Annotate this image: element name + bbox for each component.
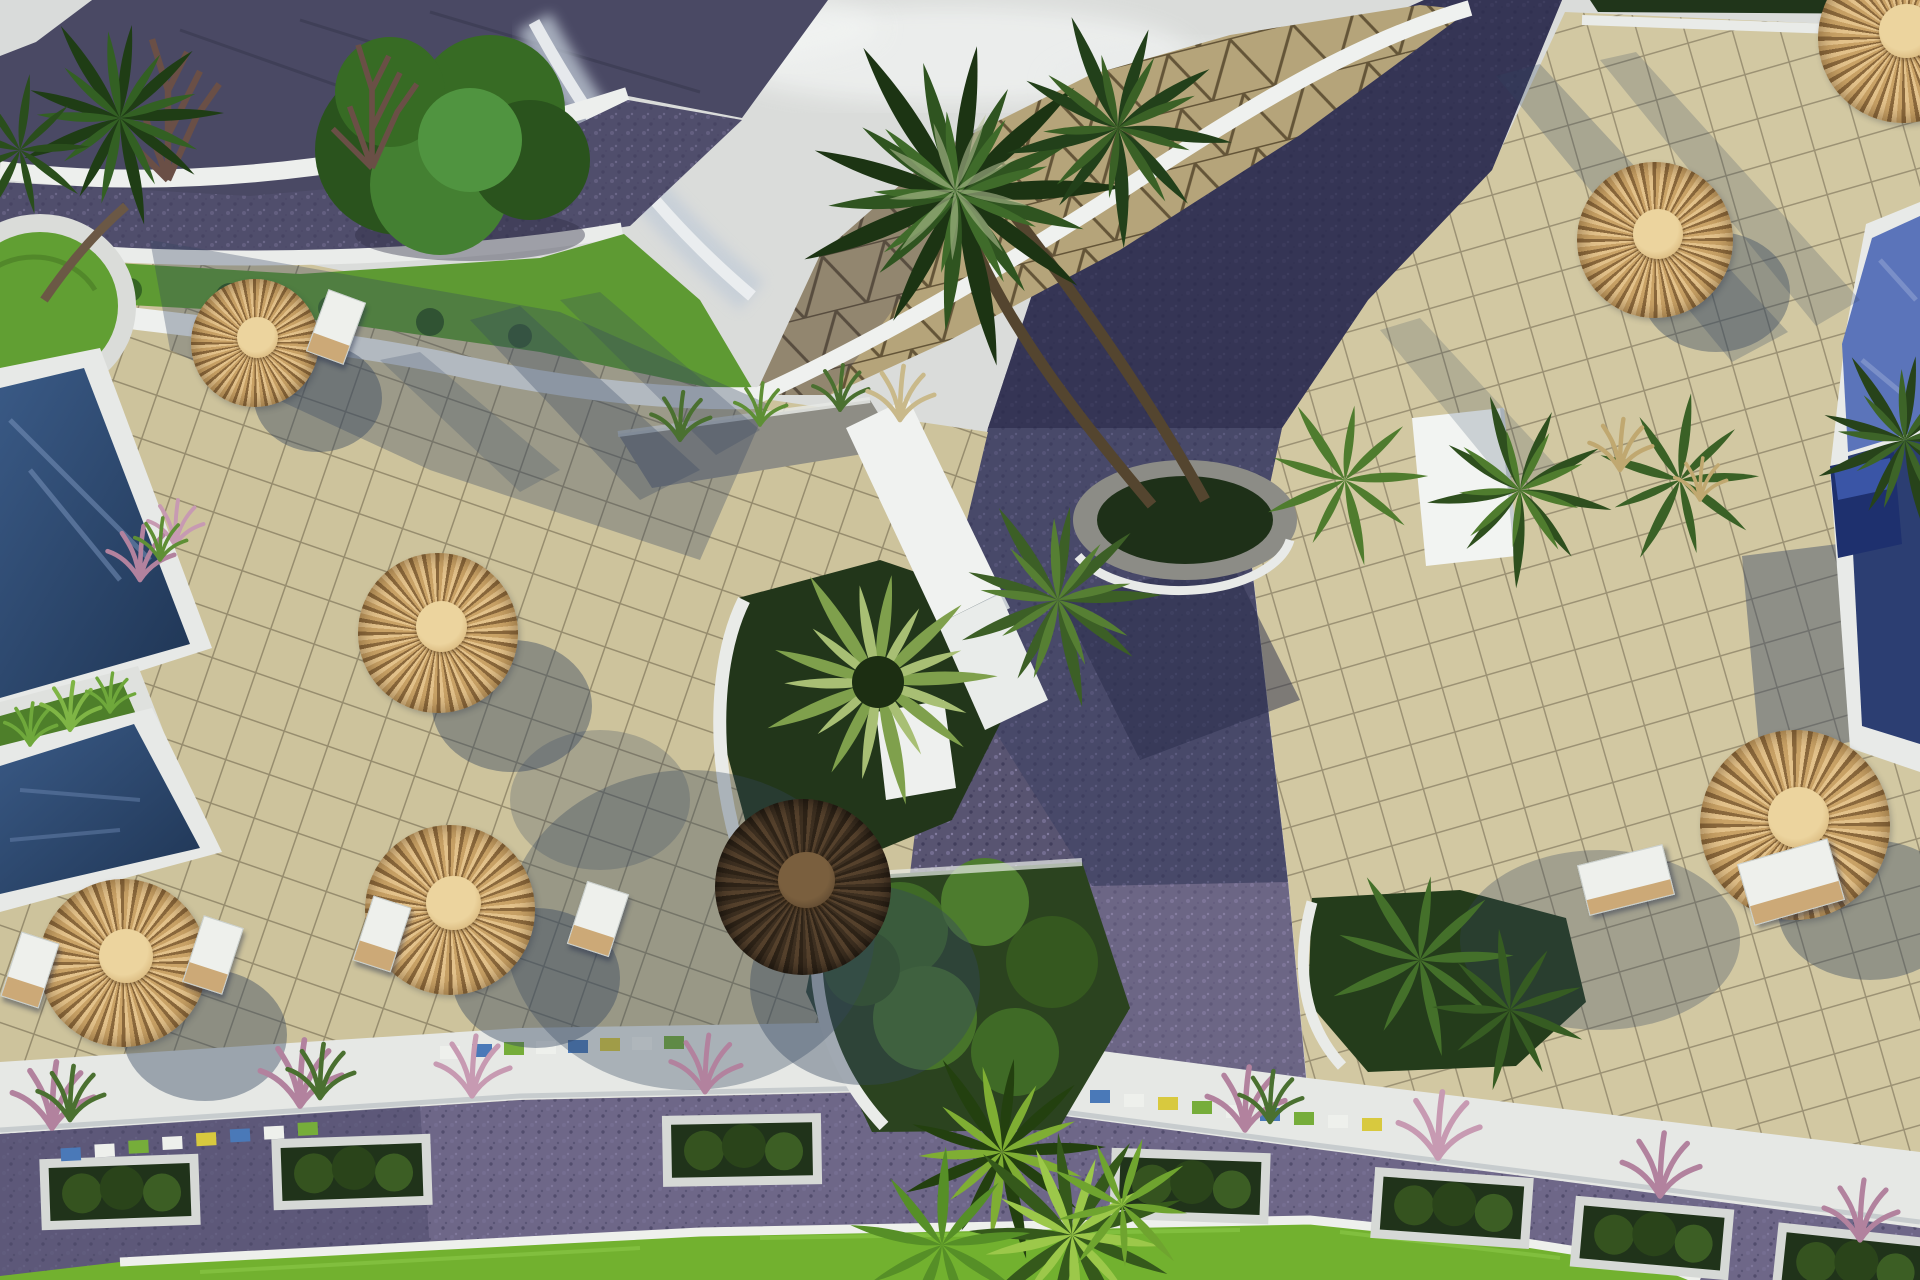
street-planter-box xyxy=(1375,1172,1529,1244)
straw-umbrella xyxy=(39,879,207,1047)
resort-aerial-render xyxy=(0,0,1920,1280)
street-planter-box xyxy=(276,1138,428,1205)
street-planter-box xyxy=(666,1118,817,1183)
straw-umbrella xyxy=(358,553,518,713)
straw-umbrella xyxy=(191,279,319,407)
straw-umbrella xyxy=(1577,162,1733,318)
street-planter-box xyxy=(1776,1227,1920,1280)
street-planter-box xyxy=(44,1158,196,1225)
dark-umbrella xyxy=(715,799,891,975)
street-planter-box xyxy=(1575,1201,1730,1276)
